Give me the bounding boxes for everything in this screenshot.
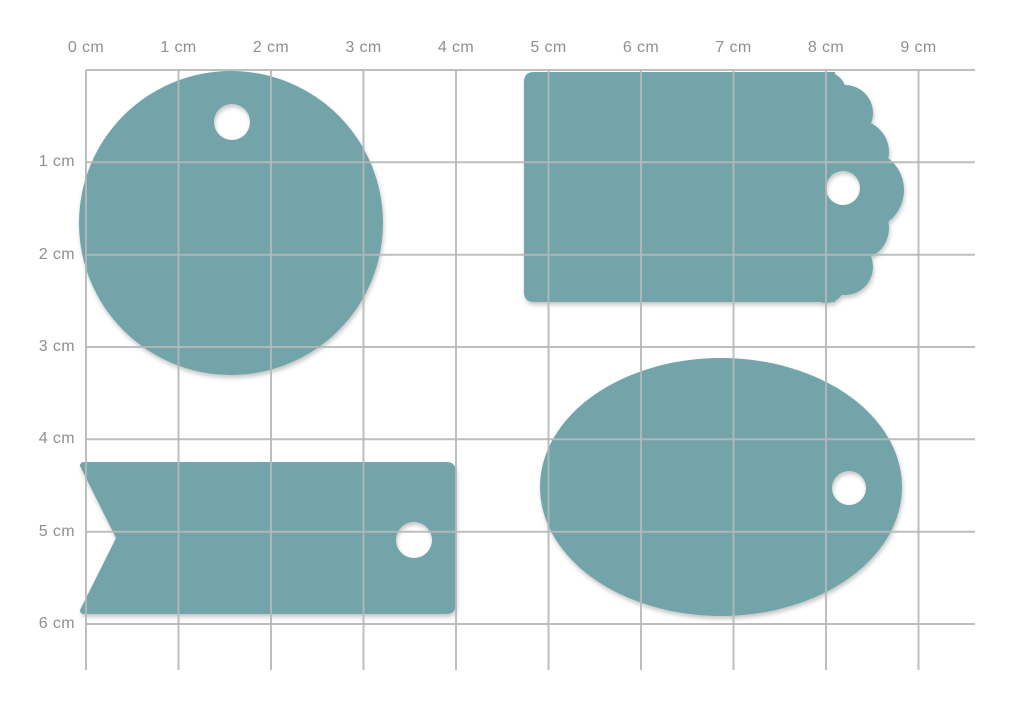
ruler-label-side-1: 1 cm — [0, 152, 75, 172]
scalloped-tag-shape — [524, 72, 904, 303]
ruler-label-top-2: 2 cm — [231, 38, 311, 58]
ruler-label-top-3: 3 cm — [324, 38, 404, 58]
ruler-label-top-6: 6 cm — [601, 38, 681, 58]
ruler-label-side-4: 4 cm — [0, 429, 75, 449]
ruler-label-top-4: 4 cm — [416, 38, 496, 58]
round-tag-shape — [79, 71, 383, 375]
ruler-label-top-0: 0 cm — [46, 38, 126, 58]
ruler-label-top-5: 5 cm — [509, 38, 589, 58]
ruler-label-side-6: 6 cm — [0, 614, 75, 634]
tag-shapes — [79, 71, 904, 616]
ruler-label-top-9: 9 cm — [879, 38, 959, 58]
oval-tag-shape — [540, 358, 902, 616]
ruler-label-top-7: 7 cm — [694, 38, 774, 58]
ruler-label-side-3: 3 cm — [0, 337, 75, 357]
tag-template-sheet: 0 cm 1 cm 2 cm 3 cm 4 cm 5 cm 6 cm 7 cm … — [0, 0, 1024, 704]
ruler-label-side-5: 5 cm — [0, 522, 75, 542]
ruler-label-top-1: 1 cm — [139, 38, 219, 58]
flag-tag-shape — [80, 462, 456, 614]
grid-canvas — [0, 0, 1024, 704]
ruler-label-top-8: 8 cm — [786, 38, 866, 58]
ruler-label-side-2: 2 cm — [0, 245, 75, 265]
